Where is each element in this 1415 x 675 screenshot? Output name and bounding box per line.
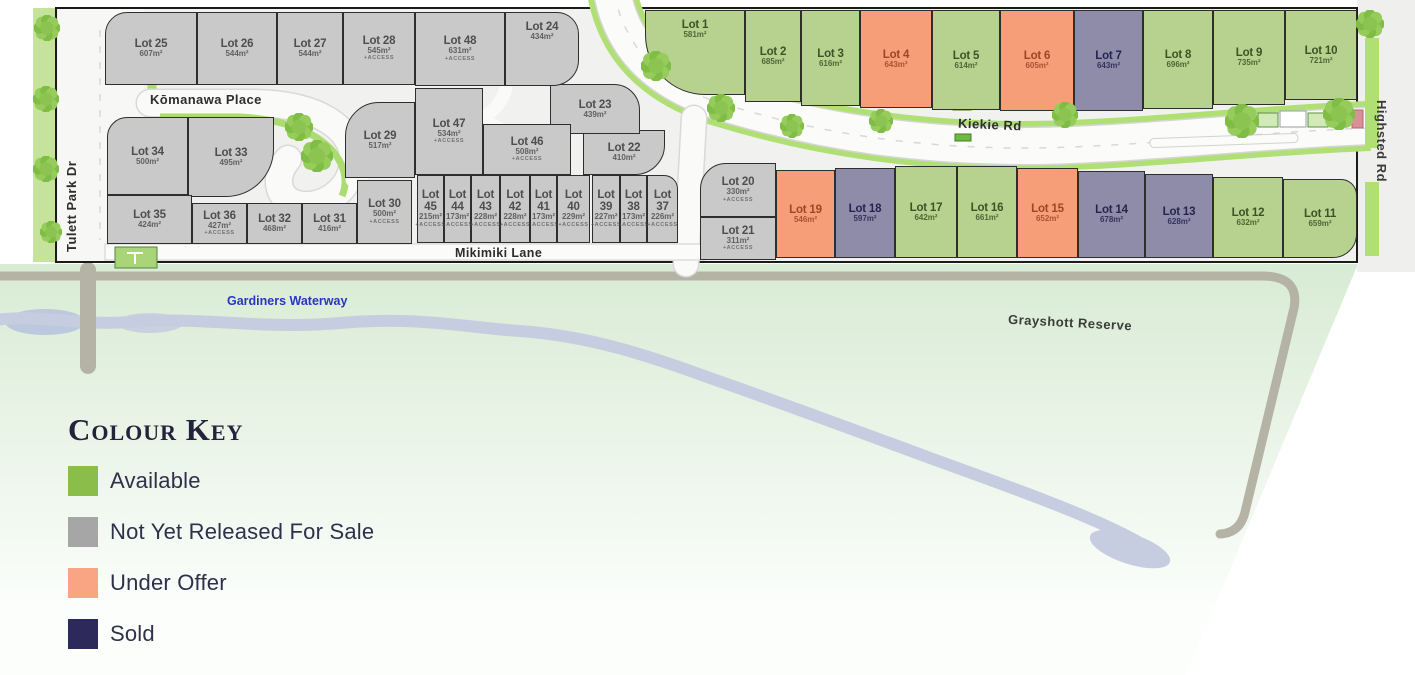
lot-label: Lot 43	[472, 189, 499, 213]
lot-area: 215m²	[419, 213, 442, 221]
lot-area: 500m²	[136, 158, 159, 166]
lot-34[interactable]: Lot 34500m²	[107, 117, 188, 195]
lot-area: 696m²	[1166, 61, 1189, 69]
lot-access-note: +ACCESS	[415, 223, 445, 229]
lot-area: 546m²	[794, 216, 817, 224]
lot-43[interactable]: Lot 43228m²+ACCESS	[471, 175, 500, 243]
lot-17[interactable]: Lot 17642m²	[895, 166, 957, 258]
lot-label: Lot 41	[531, 189, 556, 213]
legend-item-sold: Sold	[68, 619, 374, 649]
lot-area: 517m²	[368, 142, 391, 150]
colour-key-legend: Colour Key Available Not Yet Released Fo…	[68, 412, 374, 670]
lot-area: 229m²	[562, 213, 585, 221]
lot-label: Lot 40	[558, 189, 589, 213]
lot-area: 227m²	[594, 213, 617, 221]
lot-39[interactable]: Lot 39227m²+ACCESS	[592, 175, 620, 243]
lot-11[interactable]: Lot 11659m²	[1283, 179, 1357, 258]
lot-label: Lot 42	[501, 189, 529, 213]
lot-32[interactable]: Lot 32468m²	[247, 203, 302, 244]
lot-area: 631m²	[448, 47, 471, 55]
lot-area: 228m²	[503, 213, 526, 221]
lot-37[interactable]: Lot 37226m²+ACCESS	[647, 175, 678, 243]
lot-13[interactable]: Lot 13628m²	[1145, 174, 1213, 258]
legend-item-not-released: Not Yet Released For Sale	[68, 517, 374, 547]
lot-area: 173m²	[446, 213, 469, 221]
lot-area: 228m²	[474, 213, 497, 221]
lot-access-note: +ACCESS	[500, 223, 530, 229]
lot-area: 416m²	[318, 225, 341, 233]
lot-access-note: +ACCESS	[434, 139, 464, 145]
lot-area: 605m²	[1025, 62, 1048, 70]
lot-area: 534m²	[437, 130, 460, 138]
not-released-swatch	[68, 517, 98, 547]
lot-area: 632m²	[1236, 219, 1259, 227]
lot-46[interactable]: Lot 46508m²+ACCESS	[483, 124, 571, 175]
lot-41[interactable]: Lot 41173m²+ACCESS	[530, 175, 557, 243]
lot-44[interactable]: Lot 44173m²+ACCESS	[444, 175, 471, 243]
lot-15[interactable]: Lot 15652m²	[1017, 168, 1078, 258]
lot-12[interactable]: Lot 12632m²	[1213, 177, 1283, 258]
lot-access-note: +ACCESS	[723, 246, 753, 252]
lot-area: 544m²	[225, 50, 248, 58]
street-label-highsted: Highsted Rd	[1374, 100, 1389, 290]
lot-26[interactable]: Lot 26544m²	[197, 12, 277, 85]
lot-2[interactable]: Lot 2685m²	[745, 10, 801, 102]
lot-area: 616m²	[819, 60, 842, 68]
lot-area: 628m²	[1167, 218, 1190, 226]
lot-area: 500m²	[373, 210, 396, 218]
lot-area: 652m²	[1036, 215, 1059, 223]
lot-3[interactable]: Lot 3616m²	[801, 10, 860, 106]
lot-area: 424m²	[138, 221, 161, 229]
lot-access-note: +ACCESS	[723, 198, 753, 204]
lot-area: 614m²	[954, 62, 977, 70]
lot-5[interactable]: Lot 5614m²	[932, 10, 1000, 110]
lot-9[interactable]: Lot 9735m²	[1213, 10, 1285, 105]
lot-area: 545m²	[367, 47, 390, 55]
under-offer-swatch	[68, 568, 98, 598]
lot-8[interactable]: Lot 8696m²	[1143, 10, 1213, 109]
lot-42[interactable]: Lot 42228m²+ACCESS	[500, 175, 530, 243]
lot-access-note: +ACCESS	[445, 57, 475, 63]
lot-label: Lot 39	[593, 189, 619, 213]
lot-area: 607m²	[139, 50, 162, 58]
lot-16[interactable]: Lot 16661m²	[957, 166, 1017, 258]
lot-area: 173m²	[532, 213, 555, 221]
sold-swatch	[68, 619, 98, 649]
lot-area: 330m²	[726, 188, 749, 196]
street-label-kiekie: Kiekie Rd	[958, 116, 1022, 134]
lot-28[interactable]: Lot 28545m²+ACCESS	[343, 12, 415, 85]
lot-47[interactable]: Lot 47534m²+ACCESS	[415, 88, 483, 175]
lot-access-note: +ACCESS	[369, 220, 399, 226]
lot-1[interactable]: Lot 1581m²	[645, 10, 745, 95]
lot-30[interactable]: Lot 30500m²+ACCESS	[357, 180, 412, 244]
lot-area: 597m²	[853, 215, 876, 223]
lot-20[interactable]: Lot 20330m²+ACCESS	[700, 163, 776, 217]
lot-access-note: +ACCESS	[558, 223, 588, 229]
lot-33[interactable]: Lot 33495m²	[188, 117, 274, 197]
street-label-tulett: Tulett Park Dr	[64, 62, 79, 252]
lot-area: 735m²	[1237, 59, 1260, 67]
subdivision-plan: Lot 1581m²Lot 2685m²Lot 3616m²Lot 4643m²…	[0, 0, 1415, 675]
lot-area: 659m²	[1308, 220, 1331, 228]
lot-label: Lot 44	[445, 189, 470, 213]
lot-access-note: +ACCESS	[470, 223, 500, 229]
lot-access-note: +ACCESS	[647, 223, 677, 229]
lot-access-note: +ACCESS	[204, 231, 234, 237]
sold-label: Sold	[110, 621, 155, 647]
lot-21[interactable]: Lot 21311m²+ACCESS	[700, 217, 776, 260]
lot-22[interactable]: Lot 22410m²	[583, 130, 665, 175]
legend-item-available: Available	[68, 466, 374, 496]
lot-label: Lot 45	[418, 189, 443, 213]
lot-36[interactable]: Lot 36427m²+ACCESS	[192, 203, 247, 244]
lot-area: 311m²	[727, 237, 750, 245]
lot-area: 468m²	[263, 225, 286, 233]
lot-area: 685m²	[761, 58, 784, 66]
street-label-komanawa: Kōmanawa Place	[150, 92, 262, 107]
lot-25[interactable]: Lot 25607m²	[105, 12, 197, 85]
lot-14[interactable]: Lot 14678m²	[1078, 171, 1145, 258]
lot-access-note: +ACCESS	[528, 223, 558, 229]
lot-access-note: +ACCESS	[512, 157, 542, 163]
lot-19[interactable]: Lot 19546m²	[776, 170, 835, 258]
available-swatch	[68, 466, 98, 496]
lot-40[interactable]: Lot 40229m²+ACCESS	[557, 175, 590, 243]
lot-area: 427m²	[208, 222, 231, 230]
lot-area: 508m²	[515, 148, 538, 156]
lot-4[interactable]: Lot 4643m²	[860, 10, 932, 108]
lot-48[interactable]: Lot 48631m²+ACCESS	[415, 12, 505, 86]
lot-access-note: +ACCESS	[591, 223, 621, 229]
available-label: Available	[110, 468, 201, 494]
lot-6[interactable]: Lot 6605m²	[1000, 10, 1074, 111]
lot-area: 495m²	[219, 159, 242, 167]
lot-access-note: +ACCESS	[364, 56, 394, 62]
lot-7[interactable]: Lot 7643m²	[1074, 10, 1143, 111]
legend-title: Colour Key	[68, 412, 374, 448]
lot-area: 173m²	[622, 213, 645, 221]
lot-38[interactable]: Lot 38173m²+ACCESS	[620, 175, 647, 243]
lot-29[interactable]: Lot 29517m²	[345, 102, 415, 178]
lot-27[interactable]: Lot 27544m²	[277, 12, 343, 85]
lot-area: 642m²	[914, 214, 937, 222]
lot-area: 439m²	[583, 111, 606, 119]
under-offer-label: Under Offer	[110, 570, 227, 596]
lot-area: 581m²	[683, 31, 706, 39]
lot-10[interactable]: Lot 10721m²	[1285, 10, 1357, 100]
lot-area: 434m²	[530, 33, 553, 41]
lot-area: 410m²	[612, 154, 635, 162]
lot-45[interactable]: Lot 45215m²+ACCESS	[417, 175, 444, 243]
lot-35[interactable]: Lot 35424m²	[107, 195, 192, 244]
feature-label-waterway: Gardiners Waterway	[227, 294, 347, 308]
lot-24[interactable]: Lot 24434m²	[505, 12, 579, 86]
lot-label: Lot 37	[648, 189, 677, 213]
lot-area: 643m²	[884, 61, 907, 69]
lot-area: 678m²	[1100, 216, 1123, 224]
lot-area: 226m²	[651, 213, 674, 221]
legend-item-under-offer: Under Offer	[68, 568, 374, 598]
lot-area: 544m²	[298, 50, 321, 58]
lot-label: Lot 38	[621, 189, 646, 213]
street-label-mikimiki: Mikimiki Lane	[455, 246, 542, 260]
not-released-label: Not Yet Released For Sale	[110, 519, 374, 545]
lot-31[interactable]: Lot 31416m²	[302, 203, 357, 244]
lot-area: 661m²	[975, 214, 998, 222]
lot-area: 643m²	[1097, 62, 1120, 70]
lot-access-note: +ACCESS	[618, 223, 648, 229]
lot-access-note: +ACCESS	[442, 223, 472, 229]
lot-area: 721m²	[1309, 57, 1332, 65]
lot-18[interactable]: Lot 18597m²	[835, 168, 895, 258]
